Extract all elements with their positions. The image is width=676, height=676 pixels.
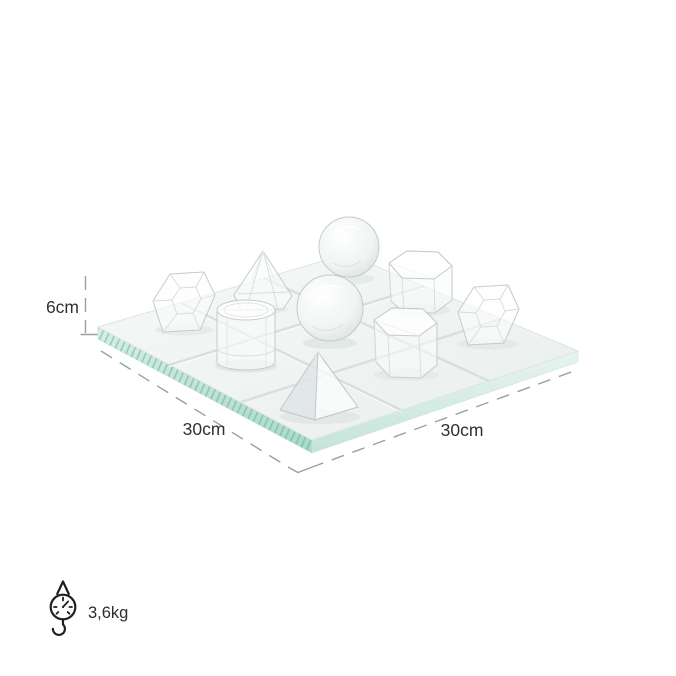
- width-dimension-label: 30cm: [183, 419, 226, 439]
- product-dimension-image: 6cm 30cm 30cm 3,6kg: [0, 0, 676, 676]
- height-dimension-label: 6cm: [0, 297, 79, 317]
- scale-dial-ticks: [54, 598, 72, 614]
- piece-cylinder: [215, 300, 277, 373]
- piece-hex-prism-back: [389, 251, 452, 316]
- scale-hook: [53, 620, 65, 635]
- scale-needle: [63, 601, 68, 607]
- corner-dimension-mark: [288, 467, 311, 473]
- depth-dimension-label: 30cm: [441, 420, 484, 440]
- weight-label: 3,6kg: [88, 604, 128, 623]
- weight-spec: 3,6kg: [49, 579, 128, 647]
- piece-hex-prism-front: [374, 308, 438, 381]
- hanging-scale-icon: [49, 579, 79, 647]
- height-dimension-line: [81, 276, 98, 335]
- product-illustration: [0, 0, 676, 676]
